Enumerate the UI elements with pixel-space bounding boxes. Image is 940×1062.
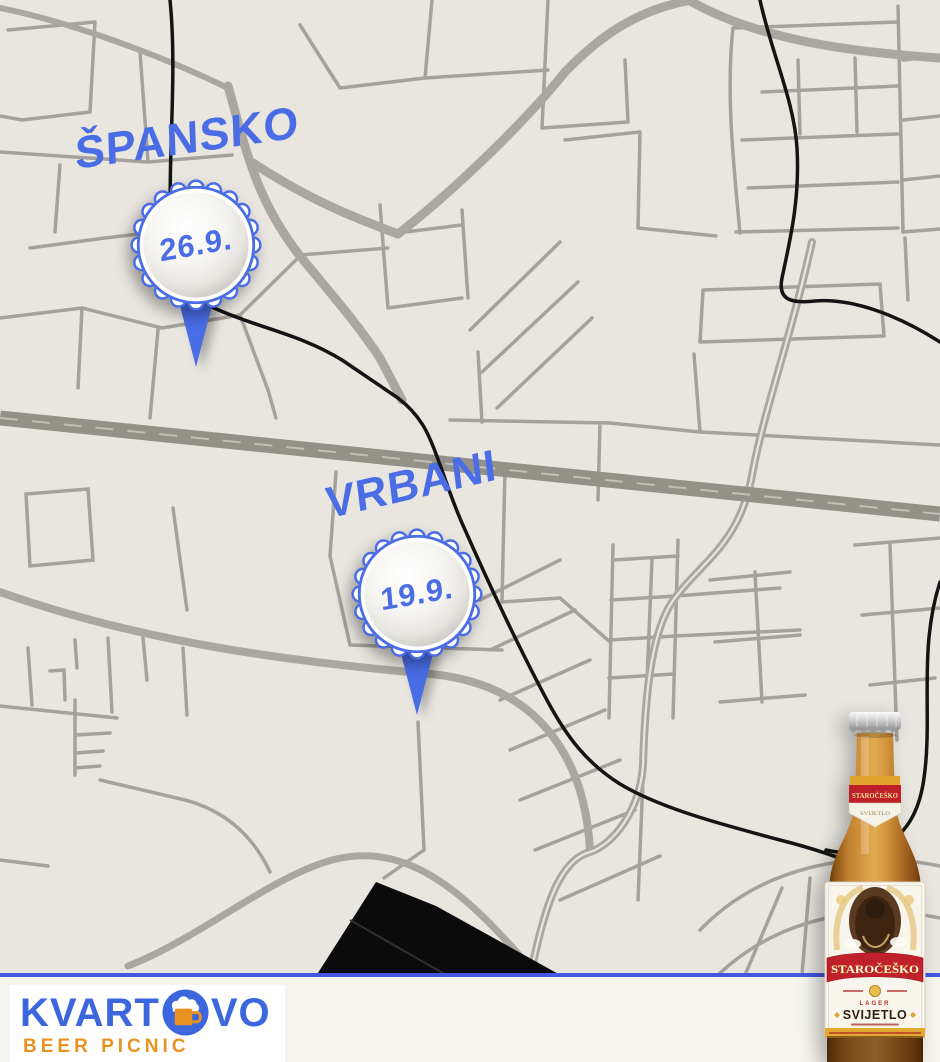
marker-date-spansko: 26.9. [120,162,272,329]
footer: KVART VO BEER PICNIC [0,977,940,1062]
brand-logo: KVART VO BEER PICNIC [10,985,285,1062]
label-style-text: LAGER [860,1001,891,1007]
neck-brand-text: STAROČEŠKO [852,792,899,800]
bottle-cap [849,712,901,733]
beer-bottle-image: STAROČEŠKO SVIJETLO STAROČEŠKO [813,706,937,1062]
label-brand-text: STAROČEŠKO [831,962,919,976]
label-variant-text: SVIJETLO [843,1008,907,1022]
beer-mug-icon [162,989,209,1036]
marker-date-vrbani: 19.9. [341,511,493,678]
marker-spansko[interactable]: 26.9. [125,174,267,316]
map: ŠPANSKO VRBANI 26.9. 19.9. [0,0,940,977]
neck-variant-text: SVIJETLO [860,811,890,817]
logo-subtitle: BEER PICNIC [20,1037,271,1056]
bottle-main-label: STAROČEŠKO LAGER SVIJETLO [825,882,925,1038]
logo-text-vo: VO [211,993,271,1033]
logo-text-kvart: KVART [20,993,160,1033]
marker-vrbani[interactable]: 19.9. [346,523,488,665]
poster-canvas: ŠPANSKO VRBANI 26.9. 19.9. KVART [0,0,940,1062]
